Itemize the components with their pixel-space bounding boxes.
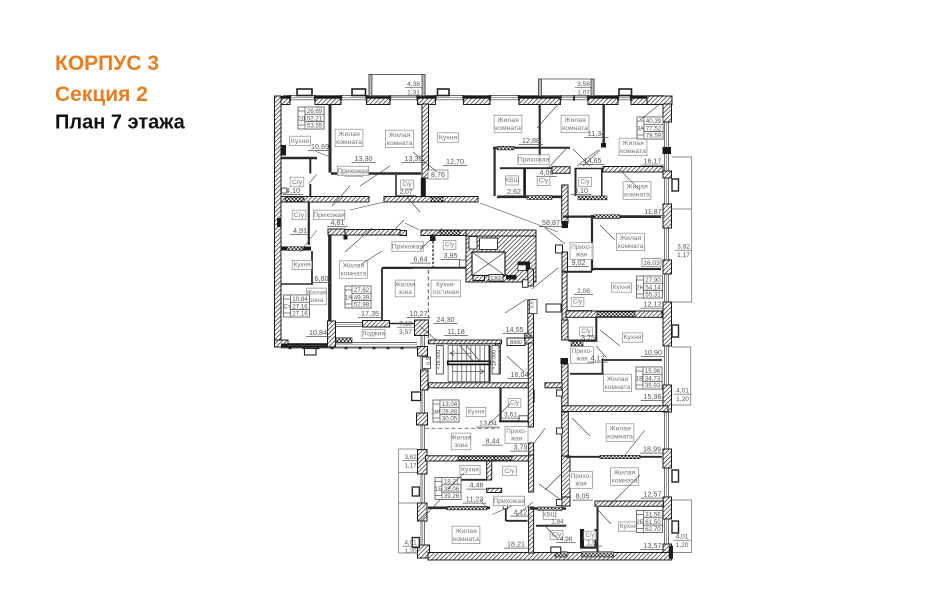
svg-text:3,95: 3,95 bbox=[444, 251, 458, 260]
svg-text:12,57: 12,57 bbox=[644, 490, 662, 499]
svg-text:Прихо-: Прихо- bbox=[571, 244, 592, 251]
svg-text:С/у: С/у bbox=[504, 468, 515, 475]
svg-text:В660: В660 bbox=[510, 340, 522, 346]
svg-text:3А: 3А bbox=[637, 126, 644, 132]
svg-text:3,75: 3,75 bbox=[581, 333, 595, 342]
svg-text:11,23: 11,23 bbox=[466, 495, 483, 504]
svg-text:16,17: 16,17 bbox=[644, 157, 662, 166]
svg-text:Кухня: Кухня bbox=[624, 334, 642, 341]
svg-text:+16.500: +16.500 bbox=[436, 350, 442, 370]
svg-text:4,01: 4,01 bbox=[676, 388, 689, 395]
svg-text:комната: комната bbox=[453, 536, 479, 543]
svg-text:30,05: 30,05 bbox=[442, 416, 458, 423]
svg-text:С/у: С/у bbox=[573, 299, 583, 306]
svg-text:Кухня: Кухня bbox=[613, 284, 631, 291]
svg-text:Жилая: Жилая bbox=[609, 425, 631, 432]
svg-text:комната: комната bbox=[618, 243, 644, 250]
svg-text:13,30: 13,30 bbox=[405, 154, 423, 163]
svg-text:4,91: 4,91 bbox=[293, 226, 307, 235]
svg-text:10,27: 10,27 bbox=[410, 309, 428, 318]
svg-text:Секция 2: Секция 2 bbox=[55, 83, 148, 106]
svg-text:комната: комната bbox=[341, 270, 367, 277]
svg-text:1,20: 1,20 bbox=[676, 542, 689, 549]
svg-text:4,12: 4,12 bbox=[591, 354, 605, 363]
svg-text:14,55: 14,55 bbox=[506, 325, 524, 334]
svg-text:12,70: 12,70 bbox=[446, 157, 464, 166]
svg-text:1,84: 1,84 bbox=[551, 519, 564, 526]
svg-text:комната: комната bbox=[495, 125, 521, 132]
svg-text:77,52: 77,52 bbox=[646, 125, 662, 132]
svg-text:39,26: 39,26 bbox=[444, 493, 460, 500]
svg-text:34,73: 34,73 bbox=[645, 375, 661, 382]
svg-text:3,82: 3,82 bbox=[404, 454, 417, 461]
svg-text:жая: жая bbox=[575, 480, 587, 487]
svg-text:16,04: 16,04 bbox=[511, 370, 529, 379]
svg-text:2,62: 2,62 bbox=[507, 187, 521, 196]
svg-text:52,98: 52,98 bbox=[354, 302, 370, 309]
svg-text:4,10: 4,10 bbox=[286, 186, 300, 195]
svg-text:12,12: 12,12 bbox=[644, 300, 662, 309]
svg-text:17,35: 17,35 bbox=[361, 309, 379, 318]
svg-text:1,20: 1,20 bbox=[404, 548, 417, 555]
svg-text:13,30: 13,30 bbox=[355, 154, 373, 163]
svg-text:зона: зона bbox=[398, 289, 412, 296]
svg-text:27,16: 27,16 bbox=[292, 311, 308, 318]
svg-text:Жилая: Жилая bbox=[343, 262, 365, 269]
svg-text:1,98: 1,98 bbox=[587, 541, 599, 547]
svg-text:0,9: 0,9 bbox=[426, 357, 432, 365]
svg-text:35,93: 35,93 bbox=[645, 383, 661, 390]
svg-text:Жилая: Жилая bbox=[614, 469, 636, 476]
svg-text:10,84: 10,84 bbox=[309, 328, 327, 337]
svg-text:комната: комната bbox=[562, 125, 588, 132]
svg-text:Прихожая: Прихожая bbox=[392, 243, 424, 250]
svg-text:0,9: 0,9 bbox=[530, 301, 536, 308]
svg-text:52,21: 52,21 bbox=[307, 115, 323, 122]
svg-text:Кухня-: Кухня- bbox=[436, 281, 455, 288]
svg-text:Прихо-: Прихо- bbox=[571, 473, 592, 480]
svg-text:Жилая: Жилая bbox=[451, 434, 472, 441]
svg-text:Прихожая: Прихожая bbox=[518, 156, 550, 163]
svg-text:Жилая: Жилая bbox=[395, 281, 416, 288]
svg-text:12,88: 12,88 bbox=[522, 136, 540, 145]
svg-text:С/у: С/у bbox=[586, 533, 595, 539]
svg-text:Жилая: Жилая bbox=[564, 117, 586, 124]
svg-text:13,57: 13,57 bbox=[644, 541, 662, 550]
svg-text:8,05: 8,05 bbox=[576, 492, 590, 501]
svg-text:49,39: 49,39 bbox=[354, 294, 370, 301]
svg-text:8,76: 8,76 bbox=[431, 170, 445, 179]
svg-text:58,87: 58,87 bbox=[542, 218, 560, 227]
svg-text:План 7 этажа: План 7 этажа bbox=[55, 112, 186, 134]
svg-text:2Н: 2Н bbox=[636, 285, 644, 291]
svg-text:2Б: 2Б bbox=[636, 520, 643, 526]
svg-text:3,79: 3,79 bbox=[514, 443, 528, 452]
svg-text:13,04: 13,04 bbox=[479, 419, 497, 428]
svg-text:Прихожая: Прихожая bbox=[493, 498, 525, 505]
svg-text:4,01: 4,01 bbox=[404, 540, 417, 547]
svg-text:Кухня: Кухня bbox=[467, 409, 485, 416]
svg-text:1,20: 1,20 bbox=[676, 396, 689, 403]
svg-text:4,38: 4,38 bbox=[407, 81, 420, 88]
svg-text:2Д: 2Д bbox=[298, 116, 305, 122]
svg-text:1В: 1В bbox=[636, 376, 643, 382]
svg-text:6,64: 6,64 bbox=[414, 255, 428, 264]
svg-text:3,61: 3,61 bbox=[504, 412, 517, 419]
svg-text:4,98: 4,98 bbox=[560, 536, 573, 543]
svg-text:4,01: 4,01 bbox=[676, 534, 689, 541]
svg-text:Кухня: Кухня bbox=[461, 467, 479, 474]
svg-text:1,17: 1,17 bbox=[404, 463, 417, 470]
svg-text:55,31: 55,31 bbox=[645, 292, 661, 299]
svg-text:9,02: 9,02 bbox=[572, 258, 586, 267]
svg-text:62,70: 62,70 bbox=[645, 526, 661, 533]
svg-text:1А: 1А bbox=[345, 295, 352, 301]
svg-text:Прихо-: Прихо- bbox=[572, 348, 593, 355]
svg-text:53,55: 53,55 bbox=[307, 123, 323, 130]
svg-text:комната: комната bbox=[624, 191, 650, 198]
svg-text:гостиная: гостиная bbox=[433, 289, 460, 296]
svg-text:С/у: С/у bbox=[510, 400, 520, 407]
svg-text:комната: комната bbox=[620, 148, 646, 155]
svg-text:С/у: С/у bbox=[445, 242, 455, 249]
svg-text:Жилая: Жилая bbox=[338, 131, 360, 138]
svg-text:8,44: 8,44 bbox=[486, 437, 500, 446]
svg-text:Прихо-: Прихо- bbox=[506, 428, 527, 435]
svg-text:3,57: 3,57 bbox=[399, 329, 412, 336]
svg-text:15,96: 15,96 bbox=[644, 392, 662, 401]
svg-text:61,50: 61,50 bbox=[645, 519, 661, 526]
svg-text:Жилая: Жилая bbox=[607, 376, 629, 383]
svg-text:Жилая: Жилая bbox=[620, 235, 642, 242]
svg-text:Кухня: Кухня bbox=[293, 262, 311, 269]
svg-text:26,69: 26,69 bbox=[307, 108, 323, 115]
svg-text:комната: комната bbox=[605, 384, 631, 391]
svg-text:16,03: 16,03 bbox=[643, 260, 660, 267]
svg-text:С/у: С/у bbox=[294, 212, 305, 219]
svg-text:1Б: 1Б bbox=[435, 487, 442, 493]
svg-text:11,87: 11,87 bbox=[644, 207, 661, 216]
svg-text:С/у: С/у bbox=[539, 178, 549, 185]
svg-text:ХВШ: ХВШ bbox=[543, 512, 557, 519]
svg-text:Ст: Ст bbox=[283, 304, 290, 310]
svg-text:Жилая: Жилая bbox=[622, 140, 644, 147]
svg-text:Кухня: Кухня bbox=[439, 134, 458, 141]
svg-text:4,81: 4,81 bbox=[331, 218, 345, 227]
svg-text:1360: 1360 bbox=[490, 276, 501, 282]
svg-text:жая: жая bbox=[511, 435, 523, 442]
svg-text:1,07: 1,07 bbox=[577, 90, 590, 97]
svg-text:3,82: 3,82 bbox=[677, 244, 690, 251]
svg-text:10,90: 10,90 bbox=[644, 348, 662, 357]
svg-text:6,60: 6,60 bbox=[315, 274, 329, 283]
svg-text:18,99: 18,99 bbox=[643, 445, 661, 454]
svg-text:2,08: 2,08 bbox=[577, 288, 590, 295]
svg-text:1,17: 1,17 bbox=[677, 252, 690, 259]
svg-text:Жилая: Жилая bbox=[455, 528, 477, 535]
svg-text:комната: комната bbox=[387, 140, 413, 147]
svg-text:4,46: 4,46 bbox=[470, 481, 484, 490]
svg-text:С/у: С/у bbox=[580, 179, 590, 186]
svg-text:40,39: 40,39 bbox=[646, 118, 662, 125]
svg-text:28,88: 28,88 bbox=[442, 408, 458, 415]
svg-text:Жилая: Жилая bbox=[497, 117, 519, 124]
svg-text:78,59: 78,59 bbox=[646, 133, 662, 140]
svg-text:2,07: 2,07 bbox=[400, 189, 413, 196]
svg-text:Кухня: Кухня bbox=[620, 523, 638, 530]
svg-text:7,13: 7,13 bbox=[399, 321, 412, 328]
svg-text:зона: зона bbox=[310, 297, 324, 304]
svg-text:4,06: 4,06 bbox=[540, 168, 554, 177]
svg-text:Лоджия: Лоджия bbox=[362, 331, 385, 338]
svg-text:3,10: 3,10 bbox=[574, 186, 588, 195]
svg-text:11,18: 11,18 bbox=[447, 327, 464, 336]
svg-text:1,31: 1,31 bbox=[407, 90, 420, 97]
svg-text:3,58: 3,58 bbox=[577, 81, 590, 88]
svg-text:38,06: 38,06 bbox=[444, 486, 460, 493]
svg-text:Жилая: Жилая bbox=[389, 132, 411, 139]
svg-text:комната: комната bbox=[612, 477, 638, 484]
svg-text:ХВШ: ХВШ bbox=[505, 177, 520, 184]
svg-text:27,16: 27,16 bbox=[292, 303, 308, 310]
svg-text:С/у: С/у bbox=[292, 179, 303, 186]
svg-text:Прихожая: Прихожая bbox=[337, 168, 369, 175]
svg-text:комната: комната bbox=[607, 433, 633, 440]
svg-text:24,30: 24,30 bbox=[437, 315, 455, 324]
svg-text:18,21: 18,21 bbox=[507, 540, 525, 549]
svg-text:10,69: 10,69 bbox=[311, 142, 329, 151]
svg-text:комната: комната bbox=[336, 139, 362, 146]
svg-text:11,34: 11,34 bbox=[588, 129, 605, 138]
svg-text:54,14: 54,14 bbox=[645, 284, 661, 291]
svg-text:КОРПУС 3: КОРПУС 3 bbox=[55, 52, 159, 75]
svg-text:зона: зона bbox=[454, 442, 468, 449]
svg-text:С/у: С/у bbox=[402, 181, 412, 188]
svg-text:+18.000: +18.000 bbox=[492, 350, 498, 370]
svg-text:жая: жая bbox=[576, 355, 588, 362]
svg-text:Кухня: Кухня bbox=[291, 138, 310, 145]
